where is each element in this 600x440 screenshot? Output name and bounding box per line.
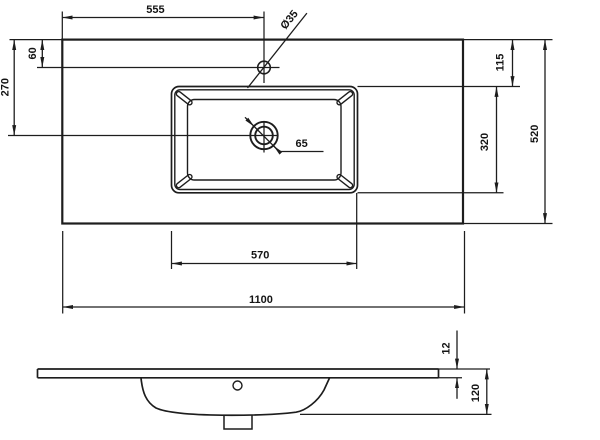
svg-text:120: 120 [470, 384, 482, 402]
svg-text:Ø35: Ø35 [278, 8, 300, 32]
svg-text:1100: 1100 [249, 294, 273, 306]
svg-text:520: 520 [529, 125, 541, 143]
svg-text:320: 320 [479, 133, 491, 151]
svg-text:555: 555 [146, 4, 164, 16]
svg-text:270: 270 [0, 78, 12, 96]
svg-text:60: 60 [27, 47, 39, 59]
svg-text:65: 65 [295, 138, 307, 150]
svg-text:570: 570 [251, 250, 269, 262]
svg-text:12: 12 [441, 342, 453, 354]
svg-text:115: 115 [495, 54, 507, 72]
